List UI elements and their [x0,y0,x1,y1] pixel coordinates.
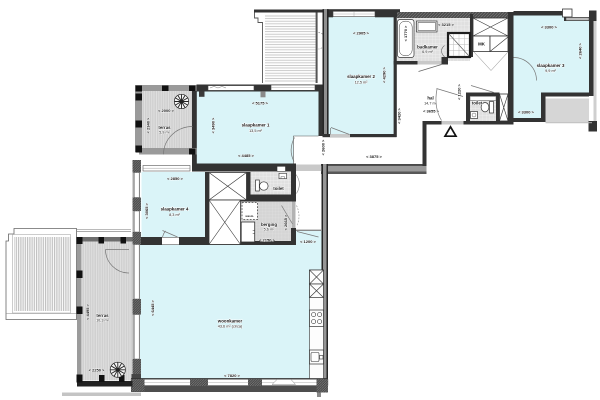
svg-text:< 2340 >: < 2340 > [146,117,151,133]
svg-text:14,7 m²: 14,7 m² [424,102,438,106]
svg-text:< 1770 >: < 1770 > [403,25,408,41]
svg-text:wasm.: wasm. [244,214,254,218]
svg-text:< 2850 >: < 2850 > [167,176,183,181]
svg-text:12,5 m²: 12,5 m² [355,80,369,84]
svg-text:6,9 m²: 6,9 m² [422,50,433,54]
svg-text:< 3300 >: < 3300 > [541,25,557,30]
svg-text:< 3065 >: < 3065 > [144,202,149,218]
svg-text:< 2665 >: < 2665 > [283,214,288,230]
svg-text:toilet: toilet [273,186,284,191]
svg-text:< 1220 >: < 1220 > [457,83,462,99]
svg-text:5,6 m²: 5,6 m² [264,228,275,232]
svg-text:slaapkamer 3: slaapkamer 3 [537,63,565,68]
svg-text:< 3490 >: < 3490 > [211,117,216,133]
svg-text:9,9 m²: 9,9 m² [545,69,556,73]
svg-text:< 4290 >: < 4290 > [382,66,387,82]
svg-text:slaapkamer 2: slaapkamer 2 [347,74,375,79]
svg-text:10,3 m²: 10,3 m² [96,319,110,323]
svg-text:< 4485 >: < 4485 > [238,153,254,158]
svg-text:< 2600 >: < 2600 > [321,139,326,155]
svg-text:< 3655 >: < 3655 > [423,109,439,114]
svg-text:terras: terras [96,313,109,318]
svg-text:8,3 m²: 8,3 m² [169,213,180,217]
svg-text:< 6445 >: < 6445 > [150,299,155,315]
svg-text:< 5175 >: < 5175 > [252,101,268,106]
svg-text:berging: berging [261,222,277,227]
svg-text:< 3420 >: < 3420 > [397,107,402,123]
svg-text:MK: MK [478,42,486,47]
svg-text:toilet: toilet [472,101,483,106]
svg-text:< 2000 >: < 2000 > [158,108,174,113]
svg-text:< 2905 >: < 2905 > [353,30,369,35]
svg-text:slaapkamer 1: slaapkamer 1 [242,123,270,128]
svg-text:43,6 m² (circa): 43,6 m² (circa) [218,324,243,328]
svg-text:hal: hal [427,95,433,100]
svg-text:< 3215 >: < 3215 > [438,22,454,27]
svg-text:< 2250 >: < 2250 > [89,368,105,373]
svg-text:slaapkamer 4: slaapkamer 4 [161,206,189,211]
svg-text:< 1200 >: < 1200 > [300,239,316,244]
svg-text:< 7820 >: < 7820 > [224,373,240,378]
svg-text:< 2150 >: < 2150 > [259,237,275,242]
svg-text:< 3300 >: < 3300 > [518,110,534,115]
svg-text:5,9 m²: 5,9 m² [159,130,170,134]
svg-text:woonkamer: woonkamer [217,318,243,323]
svg-text:terras: terras [158,125,171,130]
svg-text:< 2640 >: < 2640 > [578,42,583,58]
svg-text:13,5 m²: 13,5 m² [249,129,263,133]
svg-text:< 3875 >: < 3875 > [366,154,382,159]
svg-text:< 4495 >: < 4495 > [85,303,90,319]
